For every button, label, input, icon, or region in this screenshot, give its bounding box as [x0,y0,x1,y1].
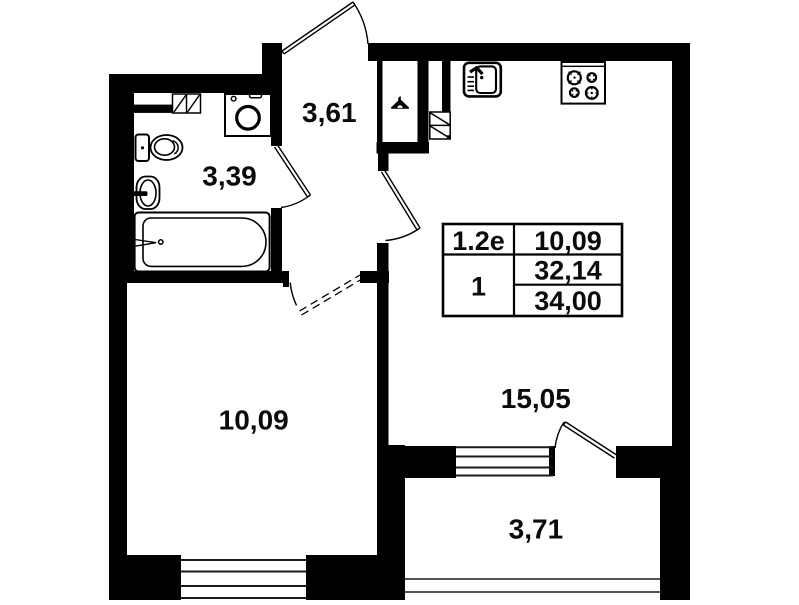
svg-text:10,09: 10,09 [534,226,602,256]
svg-text:10,09: 10,09 [219,405,289,436]
svg-text:3,39: 3,39 [202,161,257,192]
svg-text:3,61: 3,61 [302,97,357,128]
svg-text:15,05: 15,05 [501,383,571,414]
svg-text:1: 1 [471,272,486,302]
svg-text:32,14: 32,14 [534,256,602,286]
svg-text:3,71: 3,71 [509,513,564,544]
svg-text:34,00: 34,00 [534,286,602,316]
svg-text:1.2е: 1.2е [452,226,505,256]
